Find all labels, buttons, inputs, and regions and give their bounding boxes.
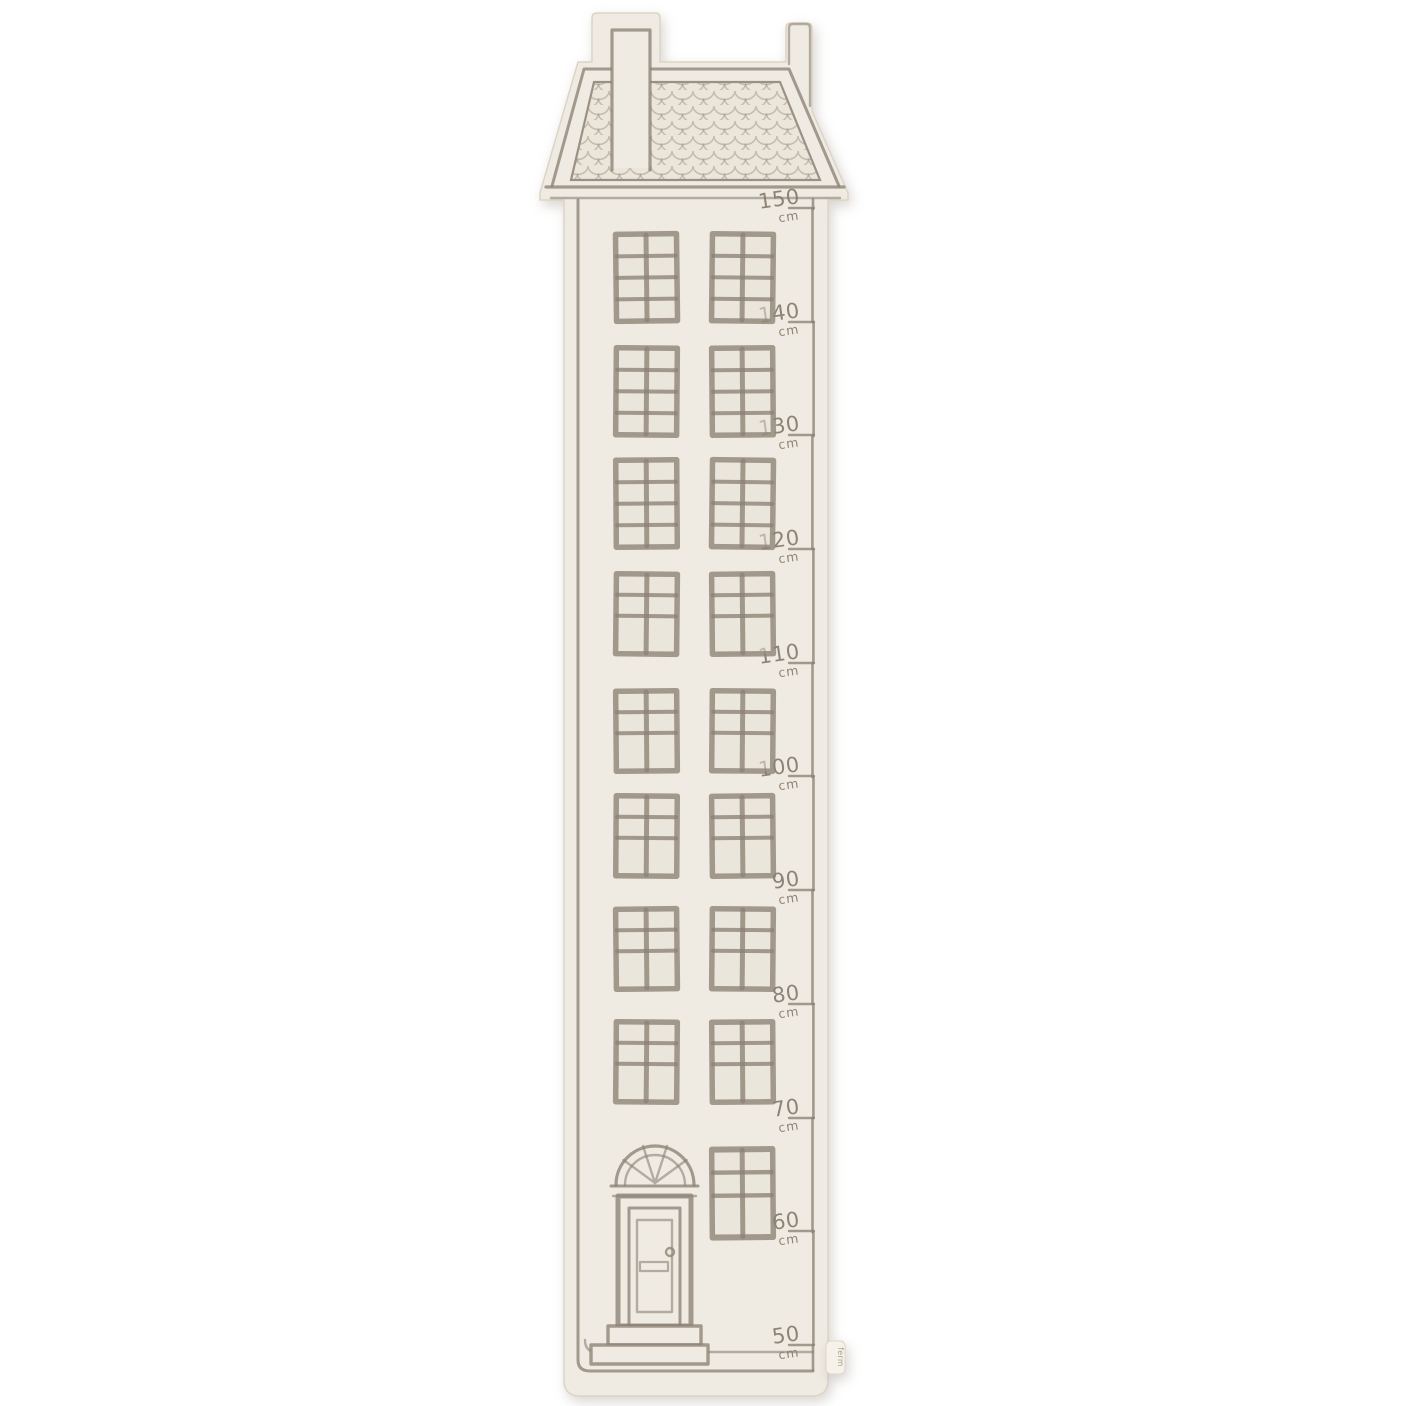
- svg-text:cm: cm: [777, 775, 800, 793]
- window-6pane: [712, 909, 774, 990]
- brand-tag-label: ferm: [836, 1347, 845, 1367]
- svg-text:cm: cm: [777, 1230, 800, 1248]
- window-6pane: [712, 1022, 774, 1103]
- window-6pane: [712, 691, 774, 772]
- svg-text:cm: cm: [777, 889, 800, 907]
- door-step-upper-fill: [608, 1326, 701, 1345]
- window-8pane: [712, 348, 774, 436]
- window-6pane: [616, 574, 678, 655]
- window-6pane: [712, 574, 774, 655]
- product-photo: 150 cm 140 cm 130 cm 120 cm 110 cm 100 c…: [0, 0, 1406, 1406]
- window-6pane: [712, 1149, 774, 1238]
- ruler-line: [812, 199, 813, 1370]
- svg-text:cm: cm: [777, 548, 800, 566]
- window-8pane: [616, 348, 678, 436]
- svg-text:cm: cm: [777, 1117, 800, 1135]
- window-6pane: [616, 909, 678, 990]
- svg-text:cm: cm: [777, 662, 800, 680]
- window-6pane: [616, 796, 678, 876]
- growth-chart-illustration: 150 cm 140 cm 130 cm 120 cm 110 cm 100 c…: [0, 0, 1406, 1406]
- window-8pane: [712, 234, 774, 322]
- window-6pane: [616, 1022, 678, 1103]
- chimney-fill: [612, 28, 650, 168]
- svg-text:cm: cm: [777, 321, 800, 339]
- svg-text:cm: cm: [777, 207, 800, 225]
- svg-text:cm: cm: [777, 1344, 800, 1362]
- window-8pane: [711, 460, 773, 548]
- window-6pane: [712, 796, 774, 877]
- fabric-house-silhouette: [540, 13, 848, 1396]
- window-8pane: [615, 234, 677, 322]
- svg-text:cm: cm: [777, 434, 800, 452]
- brand-tag: ferm: [826, 1341, 845, 1374]
- door-step-lower-fill: [591, 1345, 708, 1364]
- svg-text:cm: cm: [777, 1003, 800, 1021]
- window-6pane: [616, 691, 678, 772]
- window-8pane: [616, 460, 678, 547]
- roof-tiles: [571, 82, 820, 180]
